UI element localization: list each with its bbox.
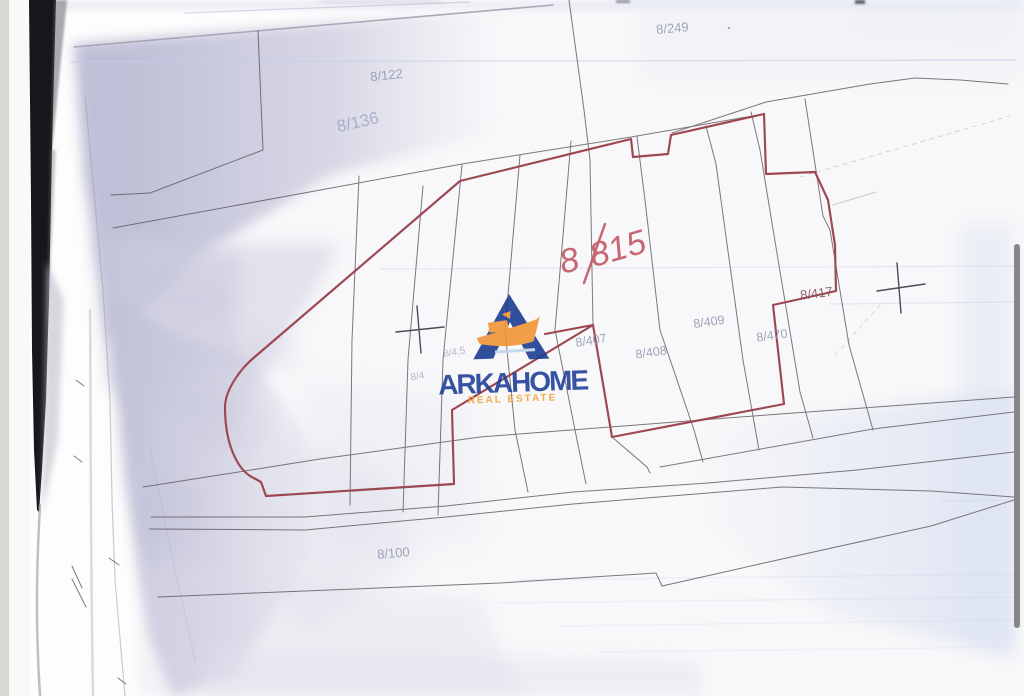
svg-text:8/100: 8/100 [377,544,411,562]
svg-text:8/249: 8/249 [655,19,689,37]
